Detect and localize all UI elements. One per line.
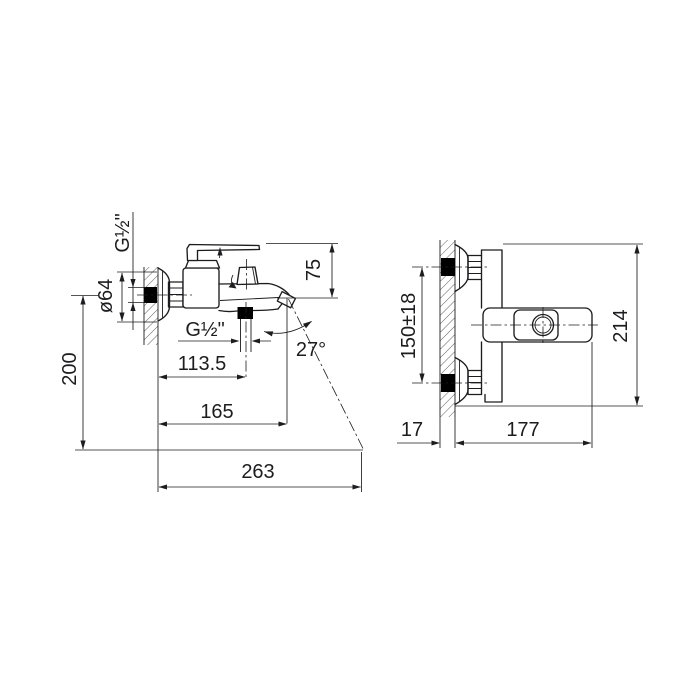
connection-nut [169,282,184,307]
wall-thread-label: G½" [112,213,134,252]
angle-27-label: 27° [296,339,326,361]
overall-height-label: 214 [610,309,632,342]
diverter-knob [229,259,259,292]
lever-handle [187,245,260,261]
wall-section [144,267,158,345]
front-view: 150±18 214 17 177 [397,240,643,448]
shower-thread-label: G½" [185,319,224,341]
mount-height-label: 200 [59,352,81,385]
handle-height-label: 75 [303,259,325,281]
stream-reach-label: 263 [241,461,274,483]
cartridge-collar [186,261,220,269]
spout-reach-label: 165 [200,401,233,423]
dim-stream-reach: 263 [159,452,362,492]
lower-escutcheon [455,358,468,405]
upper-escutcheon [455,245,468,292]
lower-nut [468,371,482,395]
faucet-body [183,268,219,308]
wall-offset-label: 17 [401,419,423,441]
shower-outlet [238,302,254,380]
upper-nut [468,256,482,280]
wall-section-front [440,240,455,417]
escutcheon [158,268,170,321]
dim-spout-reach: 165 [159,401,288,427]
side-view: 27° G½" ø64 200 75 [59,212,364,492]
dim-shower-thread: G½" [178,319,271,344]
escutcheon-diameter-label: ø64 [95,279,117,313]
dim-inlet-spacing: 150±18 [398,268,425,383]
dim-handle-height: 75 [266,244,338,299]
body-length-label: 177 [506,419,539,441]
dim-angle-27: 27° [264,321,326,361]
dim-wall-offset: 17 [397,417,455,448]
inlet-spacing-label: 150±18 [398,293,420,360]
outlet-offset-label: 113.5 [178,353,227,375]
dim-wall-thread: G½" [112,212,146,330]
faucet-dimension-drawing: 27° G½" ø64 200 75 [0,0,700,700]
diverter-arrow [229,282,237,289]
stream-angle-line [289,299,365,451]
technical-drawing-canvas: 27° G½" ø64 200 75 [0,0,700,700]
